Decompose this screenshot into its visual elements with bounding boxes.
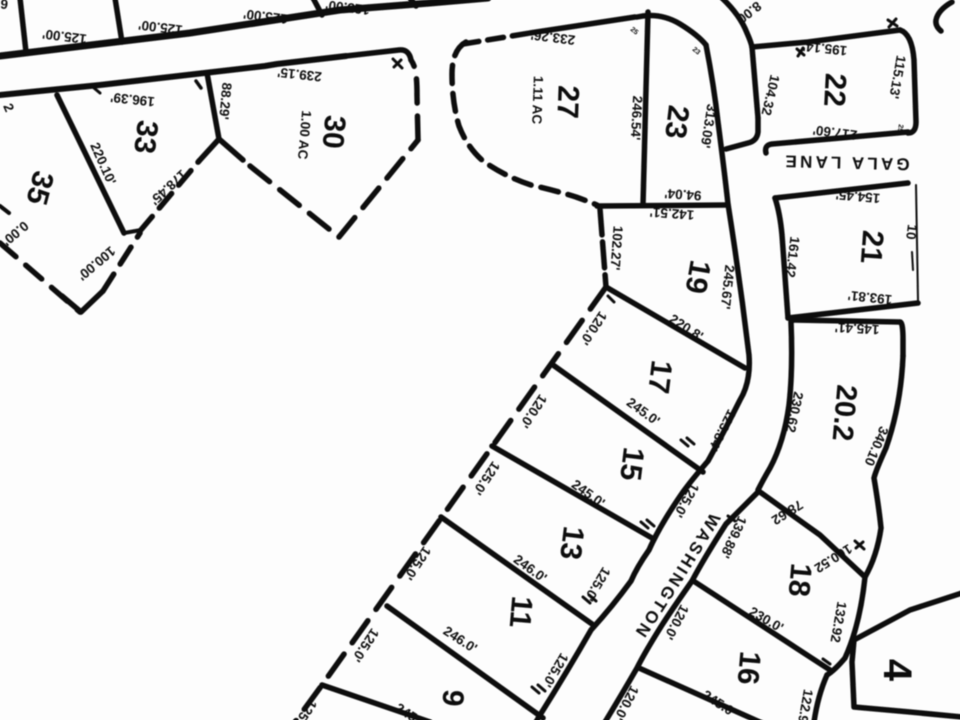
svg-text:94.04': 94.04' — [664, 186, 702, 204]
svg-text:1.11 AC: 1.11 AC — [529, 76, 546, 125]
svg-text:22: 22 — [817, 72, 852, 107]
svg-text:11: 11 — [503, 595, 539, 629]
svg-text:142.51': 142.51' — [649, 204, 694, 222]
svg-text:13: 13 — [553, 524, 590, 561]
svg-text:20.2: 20.2 — [826, 383, 863, 442]
svg-text:27: 27 — [550, 85, 584, 120]
svg-text:4: 4 — [875, 659, 919, 682]
svg-text:16: 16 — [731, 650, 767, 686]
svg-text:18: 18 — [782, 562, 818, 598]
svg-text:9: 9 — [435, 688, 469, 708]
svg-text:10: 10 — [903, 224, 920, 241]
svg-text:23: 23 — [658, 103, 695, 140]
svg-text:145.41': 145.41' — [834, 320, 879, 337]
svg-text:246.54': 246.54' — [628, 95, 645, 140]
svg-text:19: 19 — [678, 258, 716, 297]
svg-text:21: 21 — [854, 229, 889, 265]
svg-text:102.27': 102.27' — [607, 225, 625, 270]
svg-text:15: 15 — [613, 445, 650, 482]
svg-text:GALA LANE: GALA LANE — [782, 151, 910, 173]
svg-text:30: 30 — [316, 114, 352, 150]
svg-text:6: 6 — [0, 0, 9, 12]
svg-text:17: 17 — [641, 358, 678, 395]
svg-text:33: 33 — [127, 118, 164, 155]
svg-text:88.29': 88.29' — [216, 82, 234, 120]
svg-text:25: 25 — [896, 124, 904, 133]
